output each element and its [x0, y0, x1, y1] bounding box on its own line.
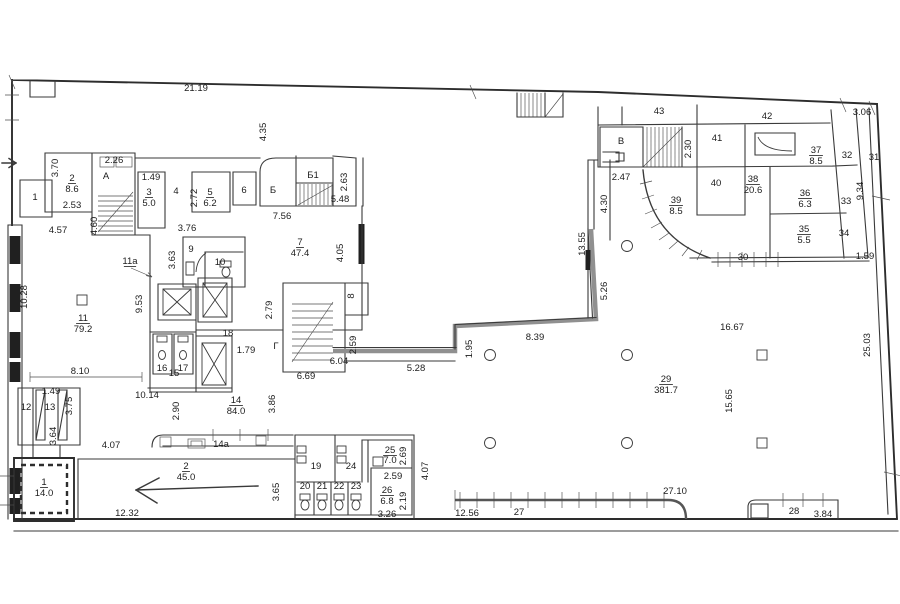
- dim-2-63: 2.63: [339, 173, 350, 192]
- dim-13-55: 13.55: [577, 232, 588, 256]
- room-42: 42: [762, 111, 773, 122]
- dim-4-07-a: 4.07: [102, 440, 121, 451]
- dim-21-19: 21.19: [184, 83, 208, 94]
- dim-7-56: 7.56: [273, 211, 292, 222]
- dim-4-07-b: 4.07: [420, 462, 431, 481]
- room-38-num: 38: [748, 174, 759, 185]
- dim-10-14: 10.14: [135, 390, 159, 401]
- labels-layer: 21.194.353.063.702.261.492.534.602.723.7…: [19, 83, 879, 520]
- dim-2-26: 2.26: [105, 155, 124, 166]
- dim-12-56: 12.56: [455, 508, 479, 519]
- dim-15-65: 15.65: [724, 389, 735, 413]
- room-37-area: 8.5: [809, 156, 822, 167]
- room-26-area: 6.8: [380, 496, 393, 507]
- room-12: 12: [21, 402, 32, 413]
- stall-22: 22: [334, 481, 345, 492]
- stall-20: 20: [300, 481, 311, 492]
- dim-3-64: 3.64: [48, 427, 59, 446]
- room-16: 16: [157, 363, 168, 374]
- room-43: 43: [654, 106, 665, 117]
- dim-2-53: 2.53: [63, 200, 82, 211]
- room-34: 34: [839, 228, 850, 239]
- room-17: 17: [178, 363, 189, 374]
- room-29-num: 29: [661, 374, 672, 385]
- dim-5-26: 5.26: [599, 282, 610, 301]
- room-19: 19: [311, 461, 322, 472]
- stall-21: 21: [317, 481, 328, 492]
- room-2-num: 2: [69, 173, 74, 184]
- room-11-num: 11: [78, 313, 88, 324]
- room-18: 18: [223, 328, 234, 339]
- stair-b1: Б1: [307, 170, 319, 181]
- wc-fixtures: [297, 446, 383, 510]
- dim-2-59-b: 2.59: [384, 471, 403, 482]
- dim-9-53: 9.53: [134, 295, 145, 314]
- room-29-area: 381.7: [654, 385, 678, 396]
- stair-b: Б: [270, 185, 276, 196]
- room-35-area: 5.5: [797, 235, 810, 246]
- room-7-area: 47.4: [291, 248, 310, 259]
- direction-arrow: [136, 478, 258, 503]
- dim-25-03: 25.03: [862, 333, 873, 357]
- dim-16-67: 16.67: [720, 322, 744, 333]
- top-right-block: [598, 105, 869, 267]
- room-2b-area: 45.0: [177, 472, 196, 483]
- room-9: 9: [188, 244, 193, 255]
- room-32: 32: [842, 150, 853, 161]
- floor-plan-page: 21.194.353.063.702.261.492.534.602.723.7…: [0, 0, 900, 604]
- room-13: 13: [45, 402, 56, 413]
- room-27: 27: [514, 507, 525, 518]
- dim-10-28: 10.28: [19, 285, 30, 309]
- stair-a: А: [103, 171, 110, 182]
- dim-3-84: 3.84: [814, 509, 833, 520]
- room-36-area: 6.3: [798, 199, 811, 210]
- room-41: 41: [712, 133, 723, 144]
- room-38-area: 20.6: [744, 185, 763, 196]
- dim-5-28: 5.28: [407, 363, 426, 374]
- dim-4-05: 4.05: [335, 244, 346, 263]
- room-26-num: 26: [382, 485, 393, 496]
- dim-8-39: 8.39: [526, 332, 545, 343]
- room-1b-area: 14.0: [35, 488, 54, 499]
- dim-2-47: 2.47: [612, 172, 631, 183]
- room-2b-num: 2: [183, 461, 188, 472]
- room-37-num: 37: [811, 145, 822, 156]
- room-5-num: 5: [207, 187, 212, 198]
- room-30: 30: [738, 252, 749, 263]
- room-31: 31: [869, 152, 880, 163]
- dim-6-69: 6.69: [297, 371, 316, 382]
- room-14-num: 14: [231, 395, 242, 406]
- dim-3-06: 3.06: [853, 107, 872, 118]
- wall-27: [455, 490, 838, 519]
- room-28: 28: [789, 506, 800, 517]
- dim-2-72: 2.72: [189, 189, 200, 208]
- room-36-num: 36: [800, 188, 811, 199]
- dim-4-35: 4.35: [258, 123, 269, 142]
- central-stair-block: [283, 283, 455, 372]
- dim-9-34: 9.34: [855, 182, 866, 201]
- dim-2-90: 2.90: [171, 402, 182, 421]
- stair-v: В: [618, 136, 624, 147]
- room-39-area: 8.5: [669, 206, 682, 217]
- room-25-area: 7.0: [383, 455, 396, 466]
- room-8: 8: [346, 293, 357, 298]
- room-10: 10: [215, 257, 226, 268]
- dim-3-86: 3.86: [267, 395, 278, 414]
- dim-3-75: 3.75: [64, 397, 75, 416]
- dim-3-65: 3.65: [271, 483, 282, 502]
- dim-4-57: 4.57: [49, 225, 68, 236]
- stall-23: 23: [351, 481, 362, 492]
- dim-3-63: 3.63: [167, 251, 178, 270]
- dim-3-26: 3.26: [378, 509, 397, 520]
- dim-4-60: 4.60: [89, 217, 100, 236]
- top-stair: [517, 93, 563, 117]
- dim-6-04: 6.04: [330, 356, 349, 367]
- dim-3-76: 3.76: [178, 223, 197, 234]
- dim-1-59: 1.59: [856, 251, 875, 262]
- room-11a: 11а: [122, 256, 138, 267]
- room-14-area: 84.0: [227, 406, 246, 417]
- floor-plan-canvas: 21.194.353.063.702.261.492.534.602.723.7…: [0, 0, 900, 604]
- room-3-num: 3: [146, 187, 151, 198]
- room-4: 4: [173, 186, 178, 197]
- dim-2-19: 2.19: [398, 492, 409, 511]
- room-2-area: 8.6: [65, 184, 78, 195]
- corridor-thick-wall: [333, 160, 610, 351]
- stair-g: Г: [273, 341, 278, 352]
- dim-5-48: 5.48: [331, 194, 350, 205]
- dim-12-32: 12.32: [115, 508, 139, 519]
- dim-3-70: 3.70: [50, 159, 61, 178]
- dim-1-79: 1.79: [237, 345, 256, 356]
- dim-4-30: 4.30: [599, 195, 610, 214]
- room-35-num: 35: [799, 224, 810, 235]
- room-1-top: 1: [32, 192, 37, 203]
- dim-1-95: 1.95: [464, 340, 475, 359]
- room-33: 33: [841, 196, 852, 207]
- room-24: 24: [346, 461, 357, 472]
- room-5-area: 6.2: [203, 198, 216, 209]
- room-14a: 14а: [213, 439, 230, 450]
- room-6: 6: [241, 185, 246, 196]
- dim-2-69: 2.69: [398, 447, 409, 466]
- room-7-num: 7: [297, 237, 302, 248]
- dim-1-49-a: 1.49: [142, 172, 161, 183]
- dim-2-59-a: 2.59: [348, 336, 359, 355]
- room-11-area: 79.2: [74, 324, 93, 335]
- room-40: 40: [711, 178, 722, 189]
- dim-2-79: 2.79: [264, 301, 275, 320]
- dim-1-49-b: 1.49: [42, 386, 61, 397]
- dim-8-10: 8.10: [71, 366, 90, 377]
- bottom-left-rooms: [0, 372, 142, 521]
- room-39-num: 39: [671, 195, 682, 206]
- dim-2-30: 2.30: [683, 140, 694, 159]
- dim-27-10: 27.10: [663, 486, 687, 497]
- room-1b-num: 1: [41, 477, 46, 488]
- room-3-area: 5.0: [142, 198, 155, 209]
